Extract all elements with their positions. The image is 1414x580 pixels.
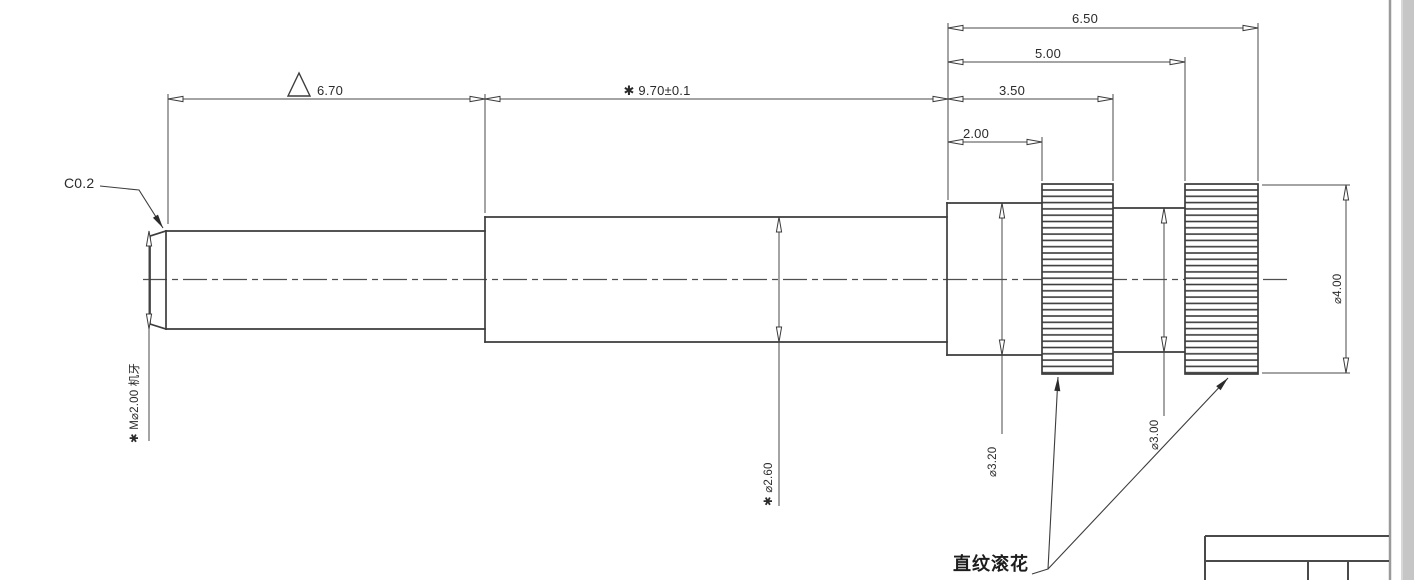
dim-dia-4-00: ⌀4.00 [1333, 274, 1345, 304]
drawing-canvas [0, 0, 1414, 580]
knurl-band-2 [1185, 184, 1258, 374]
dim-thread-m2: ✱ M⌀2.00 机牙 [130, 363, 142, 443]
dim-length-6-50: 6.50 [1072, 12, 1098, 25]
dim-dia-3-00: ⌀3.00 [1150, 420, 1162, 450]
dim-length-9-70-toleranced: ✱ 9.70±0.1 [623, 84, 690, 97]
cad-drawing-viewport: 6.50 5.00 3.50 2.00 6.70 ✱ 9.70±0.1 C0.2… [0, 0, 1414, 580]
knurl-note-label: 直纹滚花 [953, 555, 1029, 573]
knurl-band-1 [1042, 184, 1113, 374]
dim-length-5-00: 5.00 [1035, 47, 1061, 60]
dim-length-2-00: 2.00 [963, 127, 989, 140]
page-edge-band [1403, 0, 1414, 580]
dim-dia-3-20: ⌀3.20 [988, 447, 1000, 477]
title-block [1205, 536, 1389, 580]
dimension-arrowheads [146, 25, 1348, 373]
knurl-leaders [1032, 377, 1228, 574]
dim-dia-2-60: ✱ ⌀2.60 [764, 462, 776, 506]
dim-length-6-70: 6.70 [317, 84, 343, 97]
chamfer-leader [100, 186, 163, 228]
triangle-flag-symbol [288, 73, 310, 96]
chamfer-callout: C0.2 [64, 176, 94, 190]
dim-length-3-50: 3.50 [999, 84, 1025, 97]
